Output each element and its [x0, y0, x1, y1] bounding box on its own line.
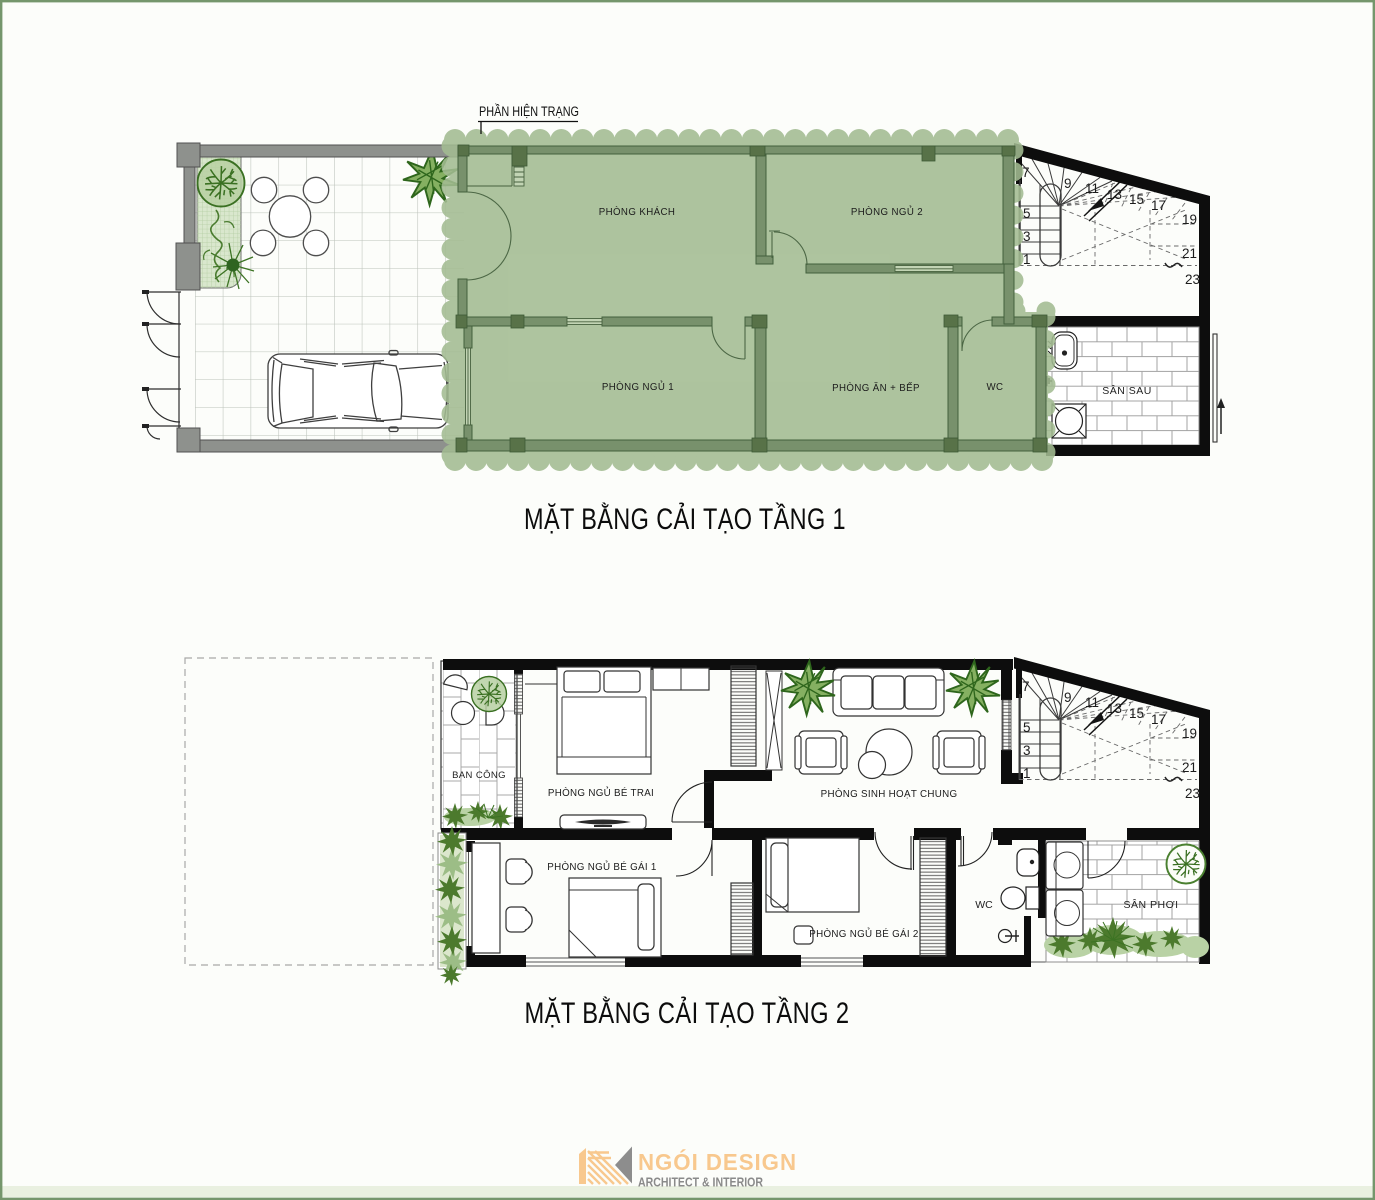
svg-text:ARCHITECT & INTERIOR: ARCHITECT & INTERIOR — [638, 1175, 763, 1190]
svg-text:PHÒNG ĂN + BẾP: PHÒNG ĂN + BẾP — [832, 383, 920, 394]
svg-text:15: 15 — [1129, 192, 1144, 207]
svg-text:13: 13 — [1107, 187, 1122, 202]
svg-text:PHÒNG NGỦ BÉ GÁI 1: PHÒNG NGỦ BÉ GÁI 1 — [547, 861, 656, 873]
svg-text:MẶT BẰNG CẢI TẠO TẦNG 1: MẶT BẰNG CẢI TẠO TẦNG 1 — [524, 502, 846, 536]
svg-text:WC: WC — [987, 382, 1004, 393]
svg-text:9: 9 — [1064, 176, 1072, 191]
svg-text:PHÒNG NGỦ 1: PHÒNG NGỦ 1 — [602, 381, 674, 393]
svg-text:BAN CÔNG: BAN CÔNG — [452, 770, 506, 781]
svg-text:21: 21 — [1182, 246, 1197, 261]
svg-text:17: 17 — [1151, 198, 1166, 213]
svg-text:PHẦN HIỆN TRẠNG: PHẦN HIỆN TRẠNG — [479, 104, 579, 119]
svg-text:SÂN SAU: SÂN SAU — [1102, 384, 1152, 397]
svg-text:PHÒNG KHÁCH: PHÒNG KHÁCH — [599, 207, 676, 218]
svg-text:PHÒNG SINH HOẠT CHUNG: PHÒNG SINH HOẠT CHUNG — [821, 789, 958, 800]
svg-text:SÂN PHƠI: SÂN PHƠI — [1123, 898, 1178, 911]
svg-text:3: 3 — [1023, 229, 1031, 244]
svg-text:5: 5 — [1023, 206, 1031, 221]
svg-text:11: 11 — [1085, 181, 1099, 196]
svg-text:PHÒNG NGỦ 2: PHÒNG NGỦ 2 — [851, 206, 923, 218]
svg-text:MẶT BẰNG CẢI TẠO TẦNG 2: MẶT BẰNG CẢI TẠO TẦNG 2 — [525, 996, 850, 1030]
svg-text:1: 1 — [1023, 252, 1031, 267]
svg-text:WC: WC — [975, 899, 993, 911]
svg-text:PHÒNG NGỦ BÉ GÁI 2: PHÒNG NGỦ BÉ GÁI 2 — [809, 928, 918, 940]
svg-text:23: 23 — [1185, 272, 1200, 287]
svg-text:19: 19 — [1182, 212, 1197, 227]
svg-text:PHÒNG NGỦ BÉ TRAI: PHÒNG NGỦ BÉ TRAI — [548, 787, 654, 799]
svg-text:NGÓI DESIGN: NGÓI DESIGN — [638, 1148, 797, 1175]
